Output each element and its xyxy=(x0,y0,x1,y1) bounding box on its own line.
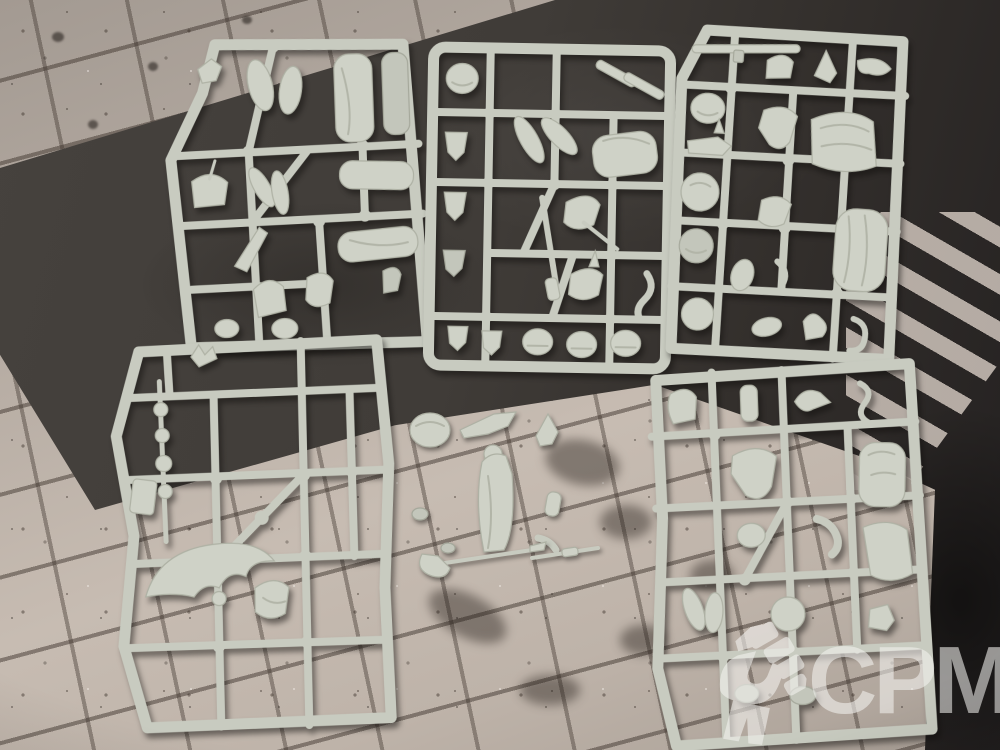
photo-vignette xyxy=(0,0,1000,750)
photo-of-model-sprues: CPM xyxy=(0,0,1000,750)
